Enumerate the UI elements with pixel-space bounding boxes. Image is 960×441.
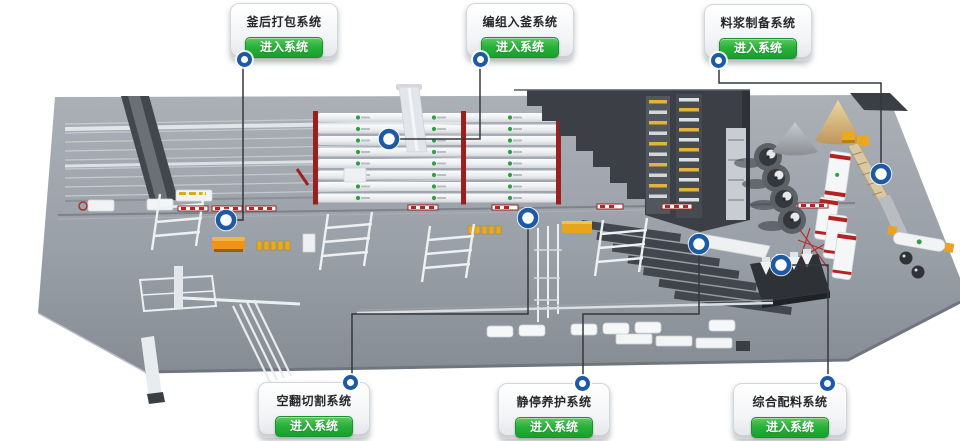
map-marker-dot[interactable] xyxy=(871,164,892,185)
card-title: 综合配料系统 xyxy=(734,393,846,410)
batching-station xyxy=(750,249,830,308)
map-marker-dot[interactable] xyxy=(689,234,710,255)
card-title: 料浆制备系统 xyxy=(705,14,811,31)
card-anchor-dot xyxy=(237,52,252,67)
map-marker-dot[interactable] xyxy=(771,255,792,276)
system-card-autoclave-packing: 釜后打包系统 进入系统 xyxy=(230,3,338,60)
card-title: 编组入釜系统 xyxy=(467,13,573,30)
card-anchor-dot xyxy=(343,375,358,390)
card-anchor-dot xyxy=(820,376,835,391)
card-anchor-dot xyxy=(575,376,590,391)
card-title: 空翻切割系统 xyxy=(259,392,369,409)
enter-system-button[interactable]: 进入系统 xyxy=(515,417,593,438)
enter-system-button[interactable]: 进入系统 xyxy=(481,37,559,58)
plant-overview-screen: { "cards": [ {"title":"釜后打包系统","button_l… xyxy=(0,0,960,441)
system-card-slurry-preparation: 料浆制备系统 进入系统 xyxy=(704,4,812,61)
card-anchor-dot xyxy=(711,53,726,68)
card-title: 静停养护系统 xyxy=(499,393,609,410)
transfer-car xyxy=(212,237,245,252)
system-card-flip-cutting: 空翻切割系统 进入系统 xyxy=(258,382,370,438)
enter-system-button[interactable]: 进入系统 xyxy=(719,38,797,59)
map-marker-dot[interactable] xyxy=(518,208,539,229)
system-card-grouping-loading: 编组入釜系统 进入系统 xyxy=(466,3,574,60)
map-marker-dot[interactable] xyxy=(379,129,400,150)
system-card-precuring: 静停养护系统 进入系统 xyxy=(498,383,610,439)
card-anchor-dot xyxy=(473,52,488,67)
map-marker-dot[interactable] xyxy=(216,210,237,231)
card-title: 釜后打包系统 xyxy=(231,13,337,30)
system-card-batching: 综合配料系统 进入系统 xyxy=(733,383,847,439)
enter-system-button[interactable]: 进入系统 xyxy=(245,37,323,58)
enter-system-button[interactable]: 进入系统 xyxy=(751,417,829,438)
enter-system-button[interactable]: 进入系统 xyxy=(275,416,353,437)
